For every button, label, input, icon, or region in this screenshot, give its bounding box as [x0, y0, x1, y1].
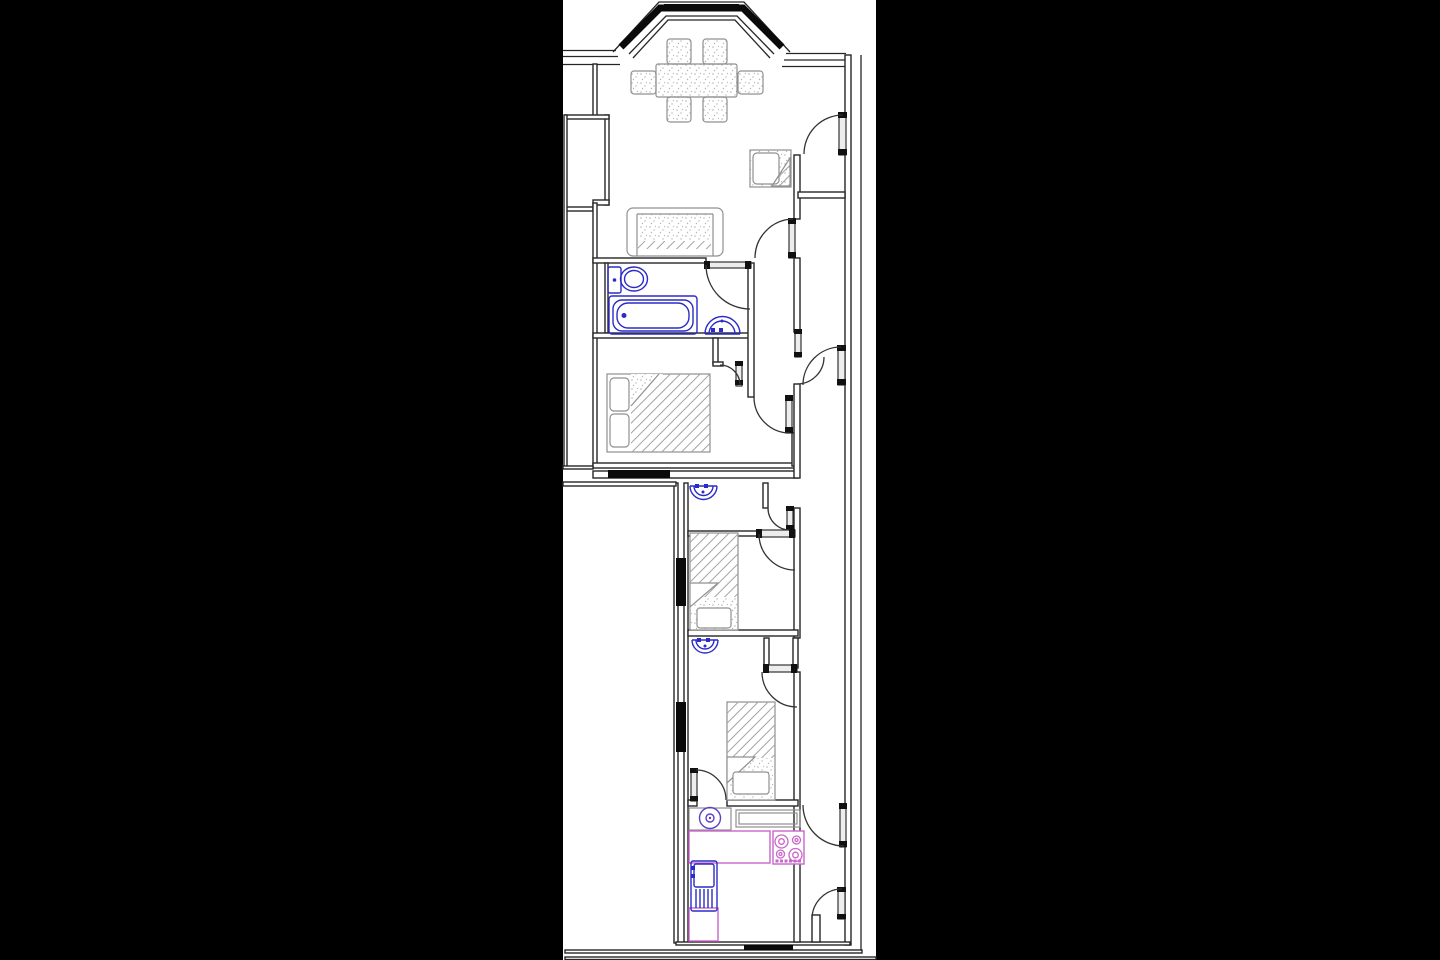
floor-plan-canvas: [0, 0, 1440, 960]
tap: [695, 484, 699, 488]
neighbor-wall: [564, 115, 567, 467]
tap: [706, 638, 710, 642]
tap: [704, 484, 708, 488]
dining-chair: [667, 97, 691, 122]
bay-top-glazing: [664, 4, 739, 11]
corridor-threshold: [798, 192, 845, 198]
bedroom2-window: [676, 558, 686, 606]
hob: [773, 831, 804, 864]
tap: [691, 874, 695, 878]
bedroom3-window: [676, 702, 686, 752]
pillow: [610, 414, 629, 447]
dining-chair: [703, 39, 727, 64]
single-bed-bedroom3: [727, 702, 775, 800]
dining-chair: [738, 71, 763, 94]
dining-chair: [631, 71, 656, 94]
dining-chair: [703, 97, 727, 122]
tap: [711, 328, 715, 332]
floor-plan: [0, 0, 1440, 960]
pillow: [610, 378, 629, 411]
tap: [691, 866, 695, 870]
sofa: [627, 208, 723, 256]
pillow: [733, 772, 769, 794]
tap: [697, 638, 701, 642]
armchair: [750, 150, 791, 187]
plan-paper: [563, 0, 876, 960]
double-bed: [607, 374, 710, 452]
kitchen-window: [744, 945, 793, 950]
bedroom1-window: [608, 470, 670, 478]
bath-tap: [622, 313, 627, 318]
single-bed-bedroom2: [690, 533, 738, 630]
dining-table: [656, 64, 737, 97]
tap: [719, 328, 723, 332]
dining-chair: [667, 39, 691, 64]
counter: [689, 831, 770, 863]
pillow: [697, 608, 731, 628]
entrance-lobby-stub: [812, 915, 820, 942]
counter: [689, 908, 718, 941]
